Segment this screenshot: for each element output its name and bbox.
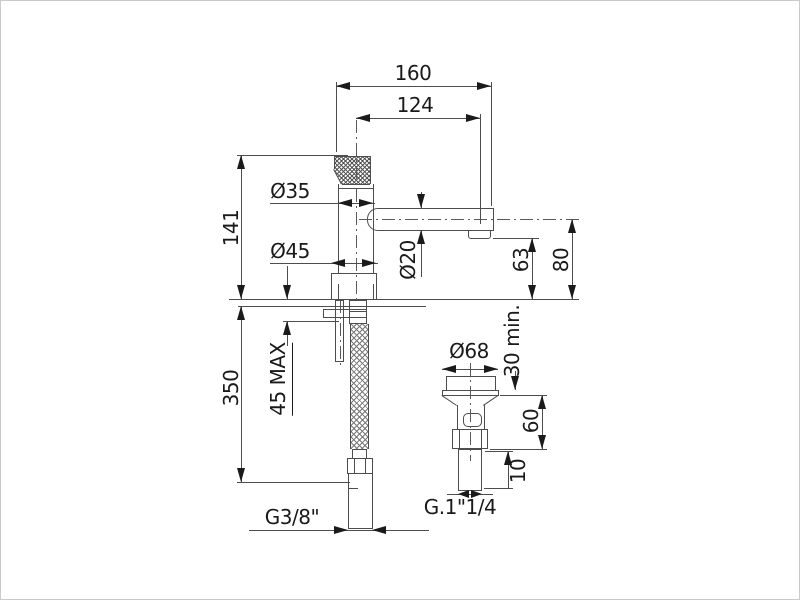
arrowhead (372, 526, 386, 534)
arrowhead (237, 155, 245, 169)
extension-line (490, 449, 547, 450)
arrowhead (477, 82, 491, 90)
handle-right-line (370, 156, 371, 184)
hose-fitting-line (349, 311, 367, 312)
extension-line (237, 482, 350, 483)
handle-left-line (334, 156, 335, 169)
waste-taper-right (483, 395, 498, 406)
braided-hose (350, 324, 369, 449)
thread-label-g38: G3/8" (265, 507, 319, 527)
dim-label-160: 160 (395, 63, 432, 83)
thread-label-g114: G.1"1/4 (424, 497, 496, 517)
deck-surface-line (229, 299, 579, 300)
dim-label-45max: 45 MAX (268, 342, 288, 415)
waste-taper-left (441, 395, 456, 406)
dim-label-dia68: Ø68 (449, 341, 489, 361)
arrowhead (466, 114, 480, 122)
arrowhead (237, 468, 245, 482)
arrowhead (336, 82, 350, 90)
arrowhead (356, 114, 370, 122)
arrowhead (528, 285, 536, 299)
dim-label-350: 350 (221, 370, 241, 407)
arrowhead (417, 194, 425, 208)
hex-facet-left (354, 458, 355, 474)
extension-line (491, 82, 492, 206)
inlet-connector (348, 473, 373, 529)
deck-underside-line (238, 306, 426, 307)
dim-label-dia20: Ø20 (398, 240, 418, 280)
dim-label-dia45: Ø45 (270, 241, 310, 261)
spout-centerline (359, 219, 579, 220)
connector-step-line (348, 488, 358, 489)
extension-line (480, 114, 481, 224)
extension-line (237, 155, 348, 156)
base-inner-right-line (373, 284, 374, 299)
dim-label-45max-text: 45 MAX (266, 342, 293, 415)
dim-label-124: 124 (397, 95, 434, 115)
arrowhead (538, 435, 546, 449)
base-shoulder-line (331, 273, 376, 274)
hose-hex-fitting (347, 458, 373, 474)
arrowhead (237, 306, 245, 320)
dim-label-63: 63 (511, 248, 531, 272)
waste-hex-facet-right (481, 429, 482, 449)
arrowhead (237, 285, 245, 299)
base-right-line (376, 273, 377, 299)
dim-label-10: 10 (508, 459, 528, 483)
arrowhead (442, 365, 456, 373)
overflow-slot (463, 413, 482, 427)
arrowhead (568, 285, 576, 299)
extension-line (283, 321, 339, 322)
arrowhead (359, 199, 373, 207)
waste-cap (446, 376, 496, 391)
arrowhead (568, 219, 576, 233)
base-inner-left-line (338, 284, 339, 299)
arrowhead (362, 259, 376, 267)
extension-line (336, 82, 337, 152)
dim-label-30min: 30 min. (502, 305, 522, 377)
body-centerline (356, 120, 357, 300)
base-left-line (331, 273, 332, 299)
arrowhead (334, 526, 348, 534)
dimension-line (336, 86, 491, 87)
arrowhead (331, 259, 345, 267)
dim-label-dia35: Ø35 (270, 181, 310, 201)
dim-label-80: 80 (551, 248, 571, 272)
waste-centerline (470, 363, 471, 461)
hex-facet-right (365, 458, 366, 474)
stud-centerline (340, 300, 341, 368)
aerator (468, 230, 491, 239)
waste-hex-facet-left (459, 429, 460, 449)
technical-drawing-canvas: 160 124 141 Ø35 Ø45 Ø20 (0, 0, 800, 600)
waste-body-left (457, 405, 458, 429)
arrowhead (484, 365, 498, 373)
dim-label-60: 60 (521, 409, 541, 433)
handle-top-line (334, 156, 370, 157)
extension-line (484, 488, 513, 489)
arrowhead (283, 321, 291, 335)
arrowhead (338, 199, 352, 207)
hose-top-fitting (349, 300, 367, 324)
arrowhead (283, 285, 291, 299)
dim-label-141: 141 (221, 210, 241, 247)
dimension-line (356, 118, 480, 119)
arrowhead (538, 395, 546, 409)
waste-body-right (484, 405, 485, 429)
arrowhead (511, 376, 519, 390)
